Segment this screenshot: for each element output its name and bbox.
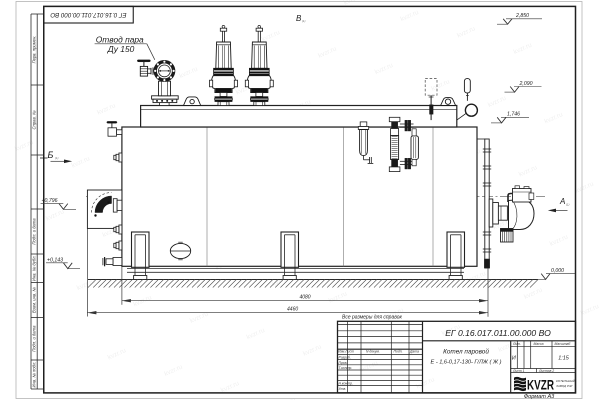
svg-text:Подп.: Подп. xyxy=(394,350,403,354)
svg-text:Инв. № подл.: Инв. № подл. xyxy=(32,362,37,388)
svg-text:(1): (1) xyxy=(55,156,58,160)
svg-text:Масса: Масса xyxy=(534,342,544,346)
svg-text:И: И xyxy=(512,356,516,362)
svg-text:1:15: 1:15 xyxy=(558,356,569,362)
svg-text:4080: 4080 xyxy=(299,294,310,300)
svg-text:Все размеры для справок: Все размеры для справок xyxy=(342,315,403,321)
svg-text:ЗАВОД РЭГ: ЗАВОД РЭГ xyxy=(556,384,573,388)
svg-text:Подп. и дата: Подп. и дата xyxy=(32,218,37,245)
svg-text:Формат А3: Формат А3 xyxy=(524,394,555,400)
svg-text:KVZR: KVZR xyxy=(527,378,554,393)
svg-text:Утв.: Утв. xyxy=(339,387,347,391)
svg-text:(1): (1) xyxy=(302,19,305,23)
svg-text:Лит.: Лит. xyxy=(512,342,521,346)
svg-text:Масштаб: Масштаб xyxy=(555,342,571,346)
svg-text:Листов 2: Листов 2 xyxy=(538,369,554,373)
svg-text:Перв. примен.: Перв. примен. xyxy=(32,36,37,64)
svg-text:Дата: Дата xyxy=(409,350,419,354)
svg-text:(1): (1) xyxy=(566,202,569,206)
svg-text:ЕГ 0.16.017.011.00.000 ВО: ЕГ 0.16.017.011.00.000 ВО xyxy=(50,11,126,18)
svg-text:А: А xyxy=(559,197,565,206)
svg-text:КОТЕЛЬНЫЙ: КОТЕЛЬНЫЙ xyxy=(556,379,576,383)
svg-text:+0,143: +0,143 xyxy=(47,257,63,263)
svg-text:Пров.: Пров. xyxy=(339,361,348,365)
svg-text:+0,796: +0,796 xyxy=(42,198,58,204)
svg-text:ЕГ 0.16.017.011.00.000 ВО: ЕГ 0.16.017.011.00.000 ВО xyxy=(445,328,551,338)
svg-text:Е - 1,6-0,17-130- Г/ЛЖ ( Ж ): Е - 1,6-0,17-130- Г/ЛЖ ( Ж ) xyxy=(431,360,502,366)
svg-text:Изм.Лист: Изм.Лист xyxy=(338,350,354,354)
svg-text:Т.контр.: Т.контр. xyxy=(339,366,353,370)
svg-text:Н.контр.: Н.контр. xyxy=(339,382,353,386)
svg-text:Справ. №: Справ. № xyxy=(32,110,37,129)
svg-text:Подп. и дата: Подп. и дата xyxy=(32,325,37,352)
svg-text:0,000: 0,000 xyxy=(551,268,564,274)
svg-text:Отвод пара: Отвод пара xyxy=(96,34,144,44)
svg-text:Инв. № дубл.: Инв. № дубл. xyxy=(32,255,37,281)
svg-text:N докум.: N докум. xyxy=(366,350,380,354)
svg-text:2,850: 2,850 xyxy=(515,13,529,19)
svg-text:2,090: 2,090 xyxy=(519,81,533,87)
svg-text:Котел паровой: Котел паровой xyxy=(443,347,489,355)
svg-text:Ду 150: Ду 150 xyxy=(107,44,135,54)
svg-text:Взам. инв. №: Взам. инв. № xyxy=(32,287,37,313)
svg-text:Лист 1: Лист 1 xyxy=(512,369,525,373)
svg-text:Разраб.: Разраб. xyxy=(339,356,351,360)
svg-text:1,746: 1,746 xyxy=(507,112,520,118)
svg-text:4460: 4460 xyxy=(287,306,298,312)
svg-text:Б: Б xyxy=(48,150,54,160)
